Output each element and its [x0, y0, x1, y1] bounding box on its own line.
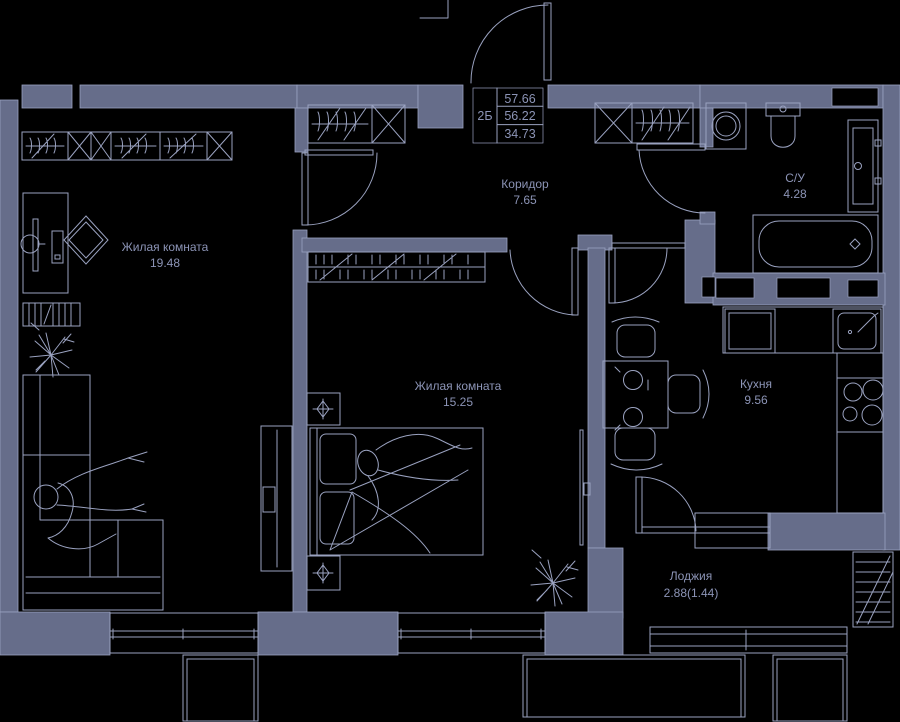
corner-sofa — [23, 375, 163, 610]
furniture-room2 — [307, 252, 590, 606]
bathroom-door-leaf-panel — [848, 120, 881, 212]
room2-door — [510, 248, 578, 315]
room2-area: 15.25 — [443, 395, 473, 409]
wardrobe-room1 — [22, 132, 232, 160]
area-reduced: 56.22 — [504, 109, 535, 123]
bathroom-area: 4.28 — [783, 187, 807, 201]
nightstand-top — [307, 393, 340, 425]
floor-plan: 2Б 57.66 56.22 34.73 — [0, 0, 900, 722]
unit-info-box: 2Б 57.66 56.22 34.73 — [473, 88, 543, 143]
room1-name: Жилая комната — [122, 240, 209, 254]
kitchen-counter — [723, 307, 883, 513]
toilet — [766, 103, 800, 147]
loggia-ladder-hatch — [853, 552, 893, 627]
area-total: 57.66 — [504, 92, 535, 106]
balcony-outlines — [183, 655, 847, 721]
desk-chair — [64, 216, 108, 264]
window-room1-bottom — [110, 613, 258, 653]
windows — [110, 513, 847, 653]
label-kitchen: Кухня 9.56 — [740, 377, 772, 407]
wardrobe-room2 — [308, 252, 485, 282]
loggia-elements — [853, 552, 893, 627]
corridor-area: 7.65 — [513, 193, 537, 207]
walls — [0, 85, 900, 655]
kitchen-name: Кухня — [740, 377, 772, 391]
chair-top — [612, 317, 659, 357]
loggia-name: Лоджия — [670, 569, 713, 583]
nightstand-bottom — [307, 556, 340, 590]
plant-room1 — [30, 323, 74, 377]
room1-area: 19.48 — [150, 256, 180, 270]
furniture-room1 — [21, 132, 292, 610]
dining-table — [603, 361, 668, 430]
window-kitchen-loggia — [642, 513, 770, 548]
label-room2: Жилая комната 15.25 — [415, 379, 502, 409]
tv-console-room1 — [261, 426, 292, 571]
room2-name: Жилая комната — [415, 379, 502, 393]
corridor-wardrobe-right — [595, 103, 693, 143]
loggia-door — [636, 477, 696, 533]
room1-door — [302, 150, 377, 225]
furniture-kitchen — [603, 307, 883, 513]
label-loggia: Лоджия 2.88(1.44) — [664, 569, 719, 600]
bathroom-door — [637, 144, 705, 213]
person-on-bed — [330, 434, 472, 553]
label-corridor: Коридор 7.65 — [501, 177, 549, 207]
bookshelf — [23, 303, 80, 326]
kitchen-area: 9.56 — [744, 393, 768, 407]
chair-right — [668, 370, 709, 418]
kitchen-door — [609, 243, 685, 303]
window-loggia-front — [650, 627, 847, 653]
entrance-door — [420, 0, 551, 83]
kitchen-sink — [833, 309, 881, 353]
loggia-area: 2.88(1.44) — [664, 586, 719, 600]
label-bathroom: С/У 4.28 — [783, 171, 807, 201]
window-room2-bottom — [398, 613, 545, 653]
corridor-name: Коридор — [501, 177, 549, 191]
plant-room2 — [531, 550, 578, 606]
bathtub — [753, 215, 878, 273]
bathroom-name: С/У — [785, 171, 805, 185]
desk — [21, 193, 68, 293]
label-room1: Жилая комната 19.48 — [122, 240, 209, 270]
chair-bottom — [611, 428, 662, 470]
floor-plan-drawing: 2Б 57.66 56.22 34.73 — [0, 0, 900, 722]
corridor-wardrobe-left — [308, 105, 405, 143]
area-living: 34.73 — [504, 127, 535, 141]
unit-label: 2Б — [477, 109, 492, 123]
stove — [837, 378, 883, 432]
